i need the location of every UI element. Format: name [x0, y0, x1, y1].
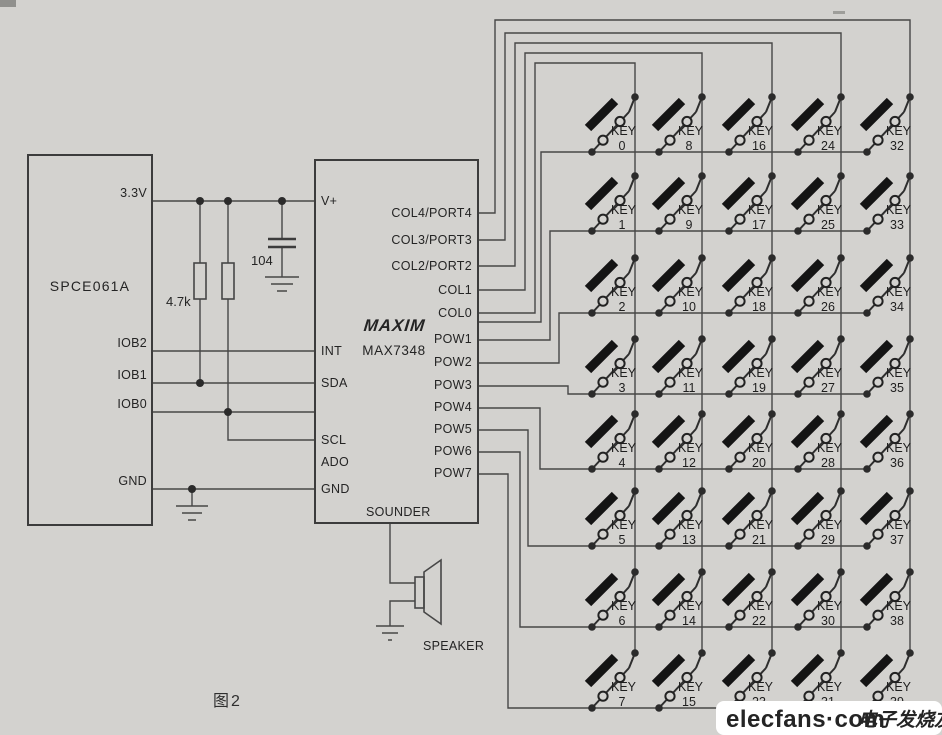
column-junction-dot — [631, 568, 639, 576]
key-number: 13 — [682, 533, 696, 547]
key-number: 21 — [752, 533, 766, 547]
key-contact — [873, 215, 882, 224]
key-contact — [873, 136, 882, 145]
row-junction-dot — [725, 148, 733, 156]
key-number: 22 — [752, 614, 766, 628]
resistor-value: 4.7k — [166, 294, 191, 309]
key-label: KEY — [748, 203, 774, 217]
mcu-pin-iob0: IOB0 — [117, 397, 147, 411]
key-number: 17 — [752, 218, 766, 232]
key-number: 24 — [821, 139, 835, 153]
row-junction-dot — [863, 309, 871, 317]
column-junction-dot — [698, 487, 706, 495]
pin-sounder: SOUNDER — [366, 505, 431, 519]
key-label: KEY — [678, 680, 704, 694]
key-number: 15 — [682, 695, 696, 709]
row-junction-dot — [863, 390, 871, 398]
key-contact — [873, 611, 882, 620]
row-junction-dot — [725, 542, 733, 550]
row-junction-dot — [588, 390, 596, 398]
maxim-logo: MAXIM — [363, 316, 427, 335]
row-junction-dot — [725, 390, 733, 398]
pin-col3: COL3/PORT3 — [391, 233, 472, 247]
key-number: 34 — [890, 300, 904, 314]
row-junction-dot — [588, 227, 596, 235]
key-contact — [598, 611, 607, 620]
column-junction-dot — [698, 93, 706, 101]
key-number: 27 — [821, 381, 835, 395]
resistor2 — [222, 263, 234, 299]
column-junction-dot — [837, 649, 845, 657]
row-junction-dot — [794, 623, 802, 631]
row-junction-dot — [588, 542, 596, 550]
key-label: KEY — [611, 285, 637, 299]
column-junction-dot — [768, 568, 776, 576]
key-number: 9 — [686, 218, 693, 232]
column-junction-dot — [906, 487, 914, 495]
row-junction-dot — [794, 465, 802, 473]
key-contact — [735, 692, 744, 701]
row-junction-dot — [794, 390, 802, 398]
key-label: KEY — [748, 599, 774, 613]
key-label: KEY — [886, 518, 912, 532]
key-label: KEY — [611, 518, 637, 532]
key-contact — [665, 378, 674, 387]
key-contact — [598, 378, 607, 387]
key-contact — [665, 530, 674, 539]
key-label: KEY — [817, 124, 843, 138]
key-label: KEY — [817, 599, 843, 613]
key-number: 4 — [619, 456, 626, 470]
column-junction-dot — [768, 649, 776, 657]
key-number: 14 — [682, 614, 696, 628]
row-junction-dot — [655, 309, 663, 317]
column-junction-dot — [837, 487, 845, 495]
key-contact — [804, 611, 813, 620]
key-label: KEY — [748, 366, 774, 380]
key-number: 38 — [890, 614, 904, 628]
key-label: KEY — [611, 441, 637, 455]
pin-gnd: GND — [321, 482, 350, 496]
pin-pow5: POW5 — [434, 422, 472, 436]
key-contact — [873, 453, 882, 462]
row-junction-dot — [794, 542, 802, 550]
row-junction-dot — [655, 623, 663, 631]
pin-pow6: POW6 — [434, 444, 472, 458]
row-junction-dot — [794, 309, 802, 317]
mcu-pin-iob1: IOB1 — [117, 368, 147, 382]
key-label: KEY — [678, 441, 704, 455]
column-junction-dot — [768, 93, 776, 101]
pin-col4: COL4/PORT4 — [391, 206, 472, 220]
key-label: KEY — [748, 441, 774, 455]
resistor1 — [194, 263, 206, 299]
column-junction-dot — [631, 335, 639, 343]
scan-speck — [0, 0, 16, 7]
key-number: 30 — [821, 614, 835, 628]
key-label: KEY — [678, 366, 704, 380]
scan-speck — [833, 11, 845, 14]
row-junction-dot — [725, 227, 733, 235]
row-junction-dot — [863, 227, 871, 235]
pin-vplus: V+ — [321, 194, 337, 208]
keyscan-part: MAX7348 — [362, 343, 426, 358]
key-label: KEY — [817, 366, 843, 380]
key-number: 32 — [890, 139, 904, 153]
column-junction-dot — [837, 568, 845, 576]
key-contact — [804, 136, 813, 145]
key-contact — [598, 530, 607, 539]
row-junction-dot — [863, 465, 871, 473]
mcu-pin-gnd: GND — [118, 474, 147, 488]
key-number: 6 — [619, 614, 626, 628]
key-number: 7 — [619, 695, 626, 709]
column-junction-dot — [837, 172, 845, 180]
key-contact — [598, 453, 607, 462]
key-number: 1 — [619, 218, 626, 232]
column-junction-dot — [631, 254, 639, 262]
key-contact — [735, 297, 744, 306]
key-label: KEY — [748, 680, 774, 694]
row-junction-dot — [588, 148, 596, 156]
key-contact — [665, 297, 674, 306]
row-junction-dot — [794, 148, 802, 156]
key-number: 11 — [683, 381, 696, 395]
key-label: KEY — [886, 441, 912, 455]
key-contact — [735, 530, 744, 539]
pin-int: INT — [321, 344, 342, 358]
column-junction-dot — [906, 172, 914, 180]
key-label: KEY — [611, 366, 637, 380]
pin-pow2: POW2 — [434, 355, 472, 369]
key-number: 12 — [682, 456, 696, 470]
speaker-driver — [415, 577, 424, 608]
key-label: KEY — [817, 680, 843, 694]
key-contact — [804, 692, 813, 701]
row-junction-dot — [655, 704, 663, 712]
key-label: KEY — [817, 441, 843, 455]
column-junction-dot — [906, 93, 914, 101]
column-junction-dot — [768, 335, 776, 343]
column-junction-dot — [768, 487, 776, 495]
key-contact — [873, 530, 882, 539]
key-contact — [598, 692, 607, 701]
circuit-diagram: 4.7k 104 SPCE061A 3.3V IOB2 IOB1 IOB0 GN… — [0, 0, 942, 735]
key-label: KEY — [678, 599, 704, 613]
row-junction-dot — [725, 623, 733, 631]
key-label: KEY — [886, 366, 912, 380]
row-junction-dot — [863, 148, 871, 156]
pin-scl: SCL — [321, 433, 346, 447]
pin-sda: SDA — [321, 376, 348, 390]
key-label: KEY — [748, 285, 774, 299]
key-label: KEY — [886, 124, 912, 138]
key-contact — [804, 530, 813, 539]
row-junction-dot — [588, 704, 596, 712]
key-number: 25 — [821, 218, 835, 232]
key-label: KEY — [817, 203, 843, 217]
key-label: KEY — [611, 124, 637, 138]
column-junction-dot — [837, 93, 845, 101]
row-junction-dot — [588, 309, 596, 317]
column-junction-dot — [631, 649, 639, 657]
row-junction-dot — [794, 227, 802, 235]
key-contact — [804, 215, 813, 224]
key-number: 19 — [752, 381, 766, 395]
key-contact — [873, 297, 882, 306]
pin-col0: COL0 — [438, 306, 472, 320]
key-number: 37 — [890, 533, 904, 547]
key-label: KEY — [886, 285, 912, 299]
column-junction-dot — [768, 410, 776, 418]
mcu-name: SPCE061A — [50, 278, 130, 294]
column-junction-dot — [698, 410, 706, 418]
key-number: 20 — [752, 456, 766, 470]
row-junction-dot — [863, 542, 871, 550]
key-label: KEY — [678, 285, 704, 299]
key-label: KEY — [748, 518, 774, 532]
key-label: KEY — [817, 285, 843, 299]
pin-pow7: POW7 — [434, 466, 472, 480]
key-contact — [804, 378, 813, 387]
pin-ado: ADO — [321, 455, 349, 469]
column-junction-dot — [837, 254, 845, 262]
watermark: elecfans·com 电子发烧友 — [716, 701, 942, 735]
key-label: KEY — [886, 680, 912, 694]
key-label: KEY — [886, 599, 912, 613]
key-label: KEY — [611, 680, 637, 694]
key-number: 5 — [619, 533, 626, 547]
pin-col2: COL2/PORT2 — [391, 259, 472, 273]
column-junction-dot — [906, 410, 914, 418]
key-number: 0 — [619, 139, 626, 153]
key-contact — [665, 215, 674, 224]
column-junction-dot — [631, 410, 639, 418]
key-contact — [873, 378, 882, 387]
key-contact — [735, 453, 744, 462]
key-label: KEY — [678, 518, 704, 532]
column-junction-dot — [906, 335, 914, 343]
column-junction-dot — [698, 568, 706, 576]
mcu-pin-3v3: 3.3V — [120, 186, 147, 200]
mcu-pin-iob2: IOB2 — [117, 336, 147, 350]
key-label: KEY — [611, 203, 637, 217]
row-junction-dot — [655, 542, 663, 550]
row-junction-dot — [863, 623, 871, 631]
key-contact — [735, 215, 744, 224]
key-number: 2 — [619, 300, 626, 314]
pin-pow4: POW4 — [434, 400, 472, 414]
key-number: 28 — [821, 456, 835, 470]
key-contact — [665, 692, 674, 701]
column-junction-dot — [906, 568, 914, 576]
row-junction-dot — [655, 465, 663, 473]
column-junction-dot — [768, 254, 776, 262]
column-junction-dot — [631, 172, 639, 180]
key-number: 10 — [682, 300, 696, 314]
row-junction-dot — [588, 465, 596, 473]
key-contact — [598, 136, 607, 145]
key-number: 16 — [752, 139, 766, 153]
column-junction-dot — [837, 335, 845, 343]
row-junction-dot — [725, 309, 733, 317]
key-number: 18 — [752, 300, 766, 314]
column-junction-dot — [906, 649, 914, 657]
key-contact — [873, 692, 882, 701]
key-contact — [665, 136, 674, 145]
watermark-tagline: 电子发烧友 — [858, 709, 942, 731]
key-label: KEY — [748, 124, 774, 138]
key-number: 35 — [890, 381, 904, 395]
column-junction-dot — [906, 254, 914, 262]
column-junction-dot — [698, 254, 706, 262]
pin-pow3: POW3 — [434, 378, 472, 392]
key-contact — [804, 297, 813, 306]
key-label: KEY — [678, 203, 704, 217]
column-junction-dot — [837, 410, 845, 418]
pin-pow1: POW1 — [434, 332, 472, 346]
pin-col1: COL1 — [438, 283, 472, 297]
schematic-scan: 4.7k 104 SPCE061A 3.3V IOB2 IOB1 IOB0 GN… — [0, 0, 942, 735]
row-junction-dot — [655, 148, 663, 156]
row-junction-dot — [655, 390, 663, 398]
row-junction-dot — [655, 227, 663, 235]
key-contact — [735, 378, 744, 387]
key-label: KEY — [817, 518, 843, 532]
key-number: 26 — [821, 300, 835, 314]
key-contact — [735, 136, 744, 145]
key-contact — [665, 453, 674, 462]
row-junction-dot — [588, 623, 596, 631]
key-number: 29 — [821, 533, 835, 547]
key-contact — [735, 611, 744, 620]
figure-caption: 图2 — [213, 693, 242, 710]
key-number: 3 — [619, 381, 626, 395]
key-contact — [665, 611, 674, 620]
key-label: KEY — [678, 124, 704, 138]
column-junction-dot — [698, 335, 706, 343]
key-contact — [804, 453, 813, 462]
column-junction-dot — [631, 487, 639, 495]
capacitor-value: 104 — [251, 253, 273, 268]
column-junction-dot — [631, 93, 639, 101]
column-junction-dot — [698, 649, 706, 657]
key-contact — [598, 215, 607, 224]
key-contact — [598, 297, 607, 306]
column-junction-dot — [698, 172, 706, 180]
row-junction-dot — [725, 465, 733, 473]
key-number: 8 — [686, 139, 693, 153]
column-junction-dot — [768, 172, 776, 180]
key-label: KEY — [886, 203, 912, 217]
key-number: 36 — [890, 456, 904, 470]
key-number: 33 — [890, 218, 904, 232]
speaker-label: SPEAKER — [423, 639, 484, 653]
key-label: KEY — [611, 599, 637, 613]
